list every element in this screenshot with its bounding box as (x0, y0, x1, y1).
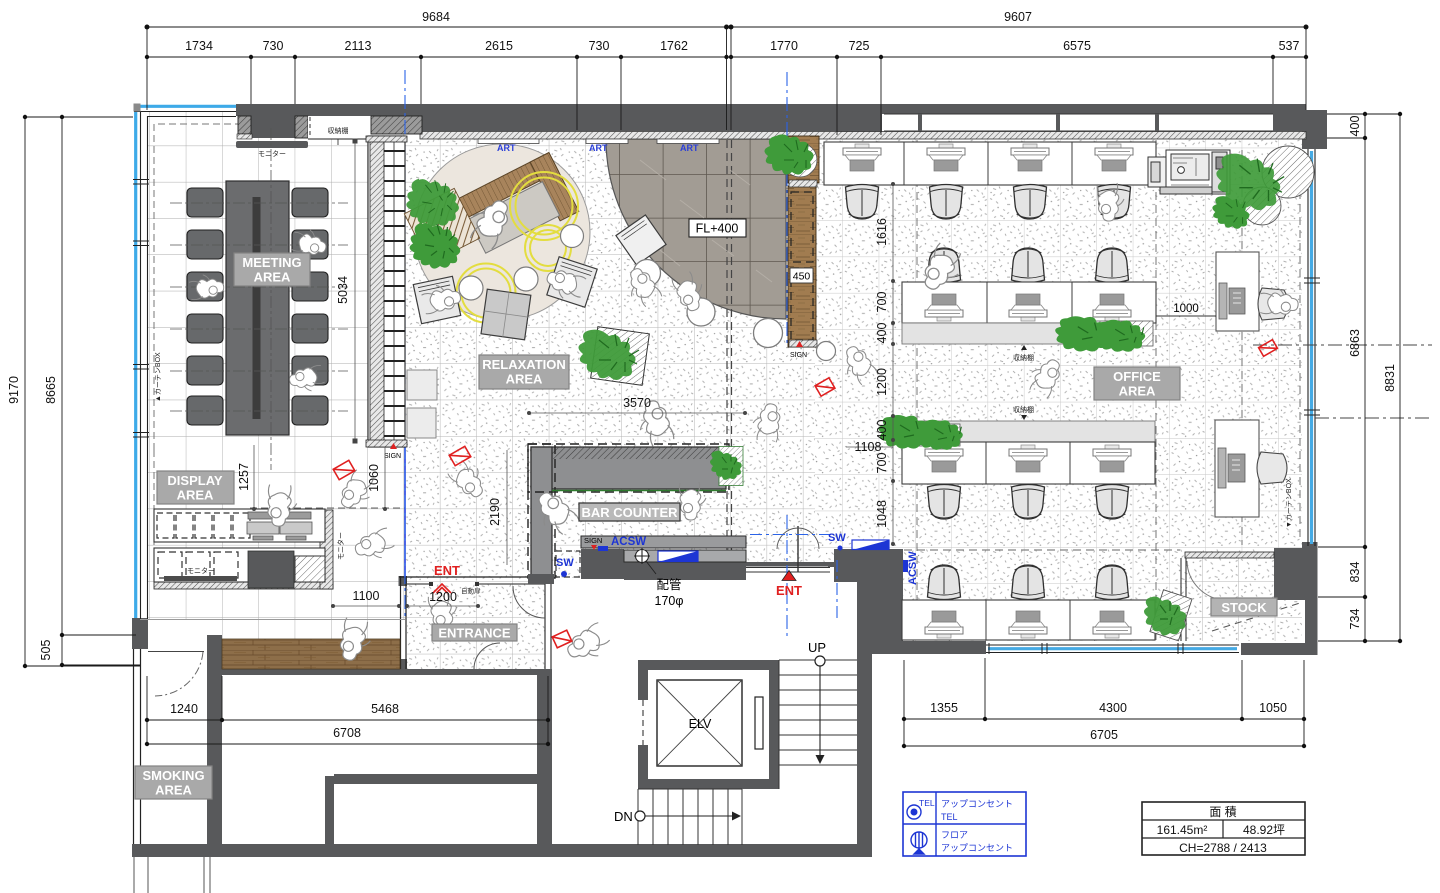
svg-text:収納棚: 収納棚 (1013, 405, 1034, 414)
svg-text:SMOKING: SMOKING (142, 768, 204, 783)
svg-text:734: 734 (1348, 609, 1362, 630)
svg-text:3570: 3570 (623, 396, 651, 410)
svg-text:730: 730 (263, 39, 284, 53)
svg-text:AREA: AREA (1119, 384, 1156, 399)
svg-text:2190: 2190 (488, 498, 502, 526)
svg-text:6705: 6705 (1090, 728, 1118, 742)
svg-text:1762: 1762 (660, 39, 688, 53)
svg-text:725: 725 (849, 39, 870, 53)
svg-text:CH=2788 / 2413: CH=2788 / 2413 (1179, 841, 1267, 855)
svg-text:537: 537 (1279, 39, 1300, 53)
svg-text:AREA: AREA (506, 372, 543, 387)
svg-text:DN: DN (614, 809, 633, 824)
svg-text:161.45m²: 161.45m² (1157, 823, 1208, 837)
svg-text:アップコンセント: アップコンセント (941, 843, 1013, 853)
svg-text:フロア: フロア (941, 830, 968, 840)
svg-text:ART: ART (497, 143, 516, 153)
svg-text:5034: 5034 (336, 276, 350, 304)
svg-text:▲カーテンBOX: ▲カーテンBOX (154, 352, 162, 402)
svg-text:UP: UP (808, 640, 826, 655)
svg-text:面 積: 面 積 (1209, 804, 1236, 819)
svg-text:SW: SW (556, 557, 574, 569)
svg-text:ENT: ENT (776, 583, 802, 598)
svg-text:モニター: モニター (258, 149, 286, 158)
svg-text:730: 730 (589, 39, 610, 53)
svg-text:170φ: 170φ (655, 594, 684, 608)
svg-text:ELV: ELV (689, 717, 712, 731)
svg-text:9170: 9170 (7, 376, 21, 404)
svg-text:1240: 1240 (170, 702, 198, 716)
svg-text:9607: 9607 (1004, 10, 1032, 24)
svg-text:1734: 1734 (185, 39, 213, 53)
svg-text:ACSW: ACSW (907, 551, 919, 585)
svg-text:8665: 8665 (44, 376, 58, 404)
svg-text:TEL: TEL (919, 798, 935, 808)
svg-text:STOCK: STOCK (1221, 600, 1267, 615)
svg-text:1616: 1616 (875, 218, 889, 246)
svg-text:AREA: AREA (254, 270, 291, 285)
svg-text:1200: 1200 (429, 590, 457, 604)
svg-text:DISPLAY: DISPLAY (167, 473, 222, 488)
svg-text:▼カーテンBOX: ▼カーテンBOX (1285, 478, 1293, 528)
svg-text:収納棚: 収納棚 (1013, 353, 1034, 362)
svg-text:SIGN: SIGN (384, 453, 401, 460)
svg-text:6708: 6708 (333, 726, 361, 740)
svg-text:1060: 1060 (367, 464, 381, 492)
svg-text:1770: 1770 (770, 39, 798, 53)
svg-text:MEETING: MEETING (242, 255, 301, 270)
svg-text:4300: 4300 (1099, 701, 1127, 715)
svg-text:モニター: モニター (336, 532, 345, 560)
svg-text:1050: 1050 (1259, 701, 1287, 715)
svg-text:1048: 1048 (875, 500, 889, 528)
svg-text:配管: 配管 (656, 577, 681, 592)
svg-text:AREA: AREA (177, 488, 214, 503)
svg-text:1100: 1100 (353, 589, 380, 603)
svg-text:ART: ART (589, 143, 608, 153)
svg-text:700: 700 (875, 453, 889, 474)
svg-text:2113: 2113 (345, 39, 372, 53)
svg-text:2615: 2615 (485, 39, 513, 53)
svg-text:8831: 8831 (1383, 364, 1397, 392)
svg-text:TEL: TEL (941, 812, 958, 822)
svg-text:5468: 5468 (371, 702, 399, 716)
svg-text:505: 505 (39, 640, 53, 661)
svg-text:400: 400 (875, 323, 889, 344)
svg-text:ENT: ENT (434, 563, 460, 578)
svg-text:AREA: AREA (155, 783, 192, 798)
svg-text:400: 400 (875, 420, 889, 441)
svg-text:1200: 1200 (875, 368, 889, 396)
svg-text:SIGN: SIGN (790, 352, 807, 359)
svg-text:1000: 1000 (1173, 303, 1199, 315)
svg-text:モニター: モニター (187, 566, 215, 575)
svg-text:700: 700 (875, 292, 889, 313)
svg-text:FL+400: FL+400 (696, 222, 739, 236)
svg-text:アップコンセント: アップコンセント (941, 799, 1013, 809)
svg-text:6575: 6575 (1063, 39, 1091, 53)
svg-text:834: 834 (1348, 562, 1362, 583)
svg-text:ART: ART (680, 143, 699, 153)
svg-text:OFFICE: OFFICE (1113, 369, 1161, 384)
svg-text:SW: SW (828, 532, 846, 544)
svg-text:収納棚: 収納棚 (328, 126, 349, 135)
svg-text:BAR COUNTER: BAR COUNTER (581, 505, 678, 520)
svg-text:9684: 9684 (422, 10, 450, 24)
svg-text:48.92坪: 48.92坪 (1243, 823, 1285, 837)
svg-text:ACSW: ACSW (611, 536, 646, 548)
svg-text:1257: 1257 (237, 463, 251, 491)
svg-text:1108: 1108 (855, 440, 882, 454)
svg-text:RELAXATION: RELAXATION (482, 357, 566, 372)
svg-text:400: 400 (1348, 116, 1362, 137)
svg-text:1355: 1355 (930, 701, 958, 715)
svg-text:自動扉: 自動扉 (461, 586, 481, 595)
svg-text:ENTRANCE: ENTRANCE (438, 626, 511, 641)
svg-text:6863: 6863 (1348, 329, 1362, 357)
svg-text:450: 450 (793, 271, 811, 283)
svg-text:SIGN: SIGN (584, 536, 602, 545)
